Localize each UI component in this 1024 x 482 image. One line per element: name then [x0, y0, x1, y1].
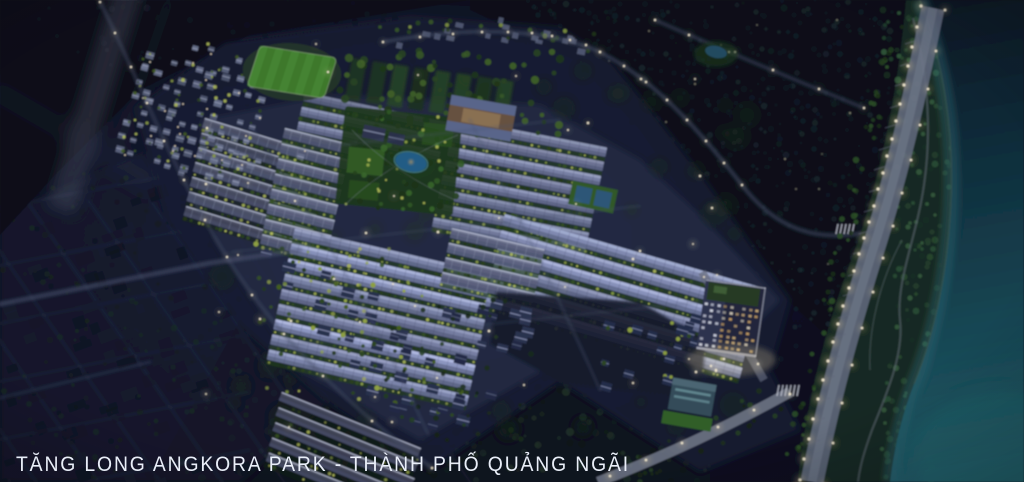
svg-text:TĂNG LONG ANGKORA PARK - THÀNH: TĂNG LONG ANGKORA PARK - THÀNH PHỐ QUẢNG…	[16, 452, 630, 476]
